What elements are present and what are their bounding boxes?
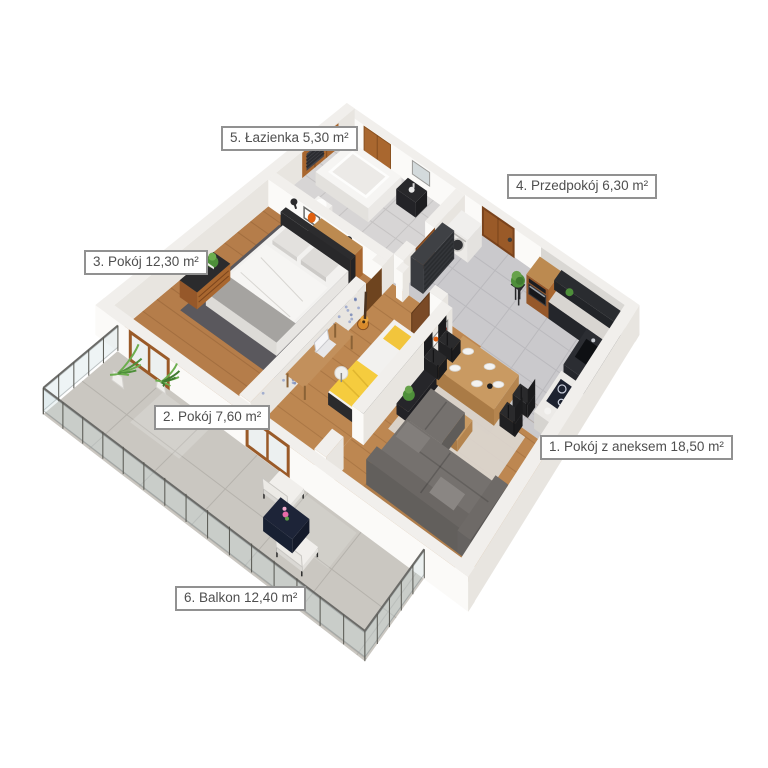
floorplan-page: 5. Łazienka 5,30 m² 4. Przedpokój 6,30 m… xyxy=(0,0,768,768)
floorplan-svg xyxy=(0,0,768,768)
room-label-pokoj-2: 2. Pokój 7,60 m² xyxy=(154,405,270,430)
room-label-balkon: 6. Balkon 12,40 m² xyxy=(175,586,306,611)
room-label-przedpokoj: 4. Przedpokój 6,30 m² xyxy=(507,174,657,199)
room-label-pokoj-3: 3. Pokój 12,30 m² xyxy=(84,250,208,275)
room-label-lazienka: 5. Łazienka 5,30 m² xyxy=(221,126,358,151)
room-label-pokoj-z-aneksem: 1. Pokój z aneksem 18,50 m² xyxy=(540,435,733,460)
